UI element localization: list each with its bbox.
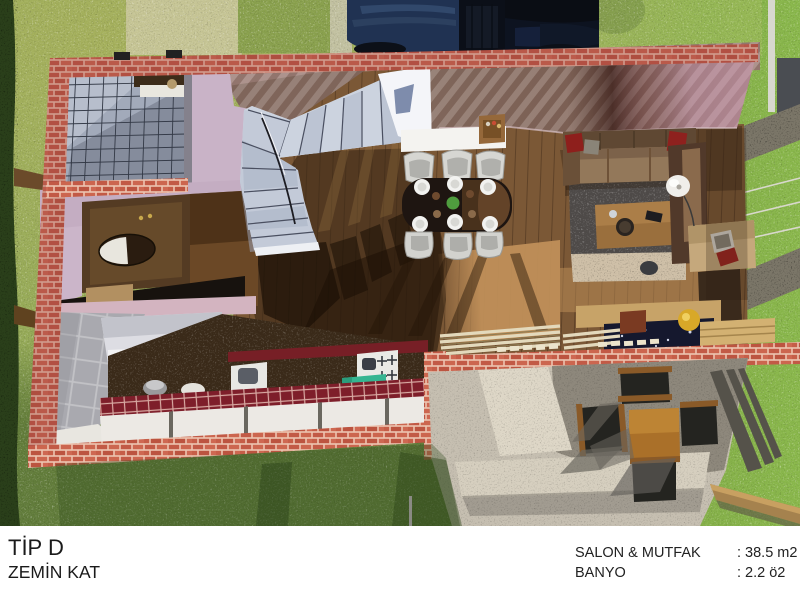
svg-text:: 38.5 m2: : 38.5 m2 [737,545,797,561]
svg-text:BANYO: BANYO [575,565,626,581]
svg-text:: 2.2 ö2: : 2.2 ö2 [737,565,785,581]
svg-text:SALON & MUTFAK: SALON & MUTFAK [575,545,701,561]
svg-text:TİP D: TİP D [8,535,64,560]
svg-text:ZEMİN KAT: ZEMİN KAT [8,562,100,582]
